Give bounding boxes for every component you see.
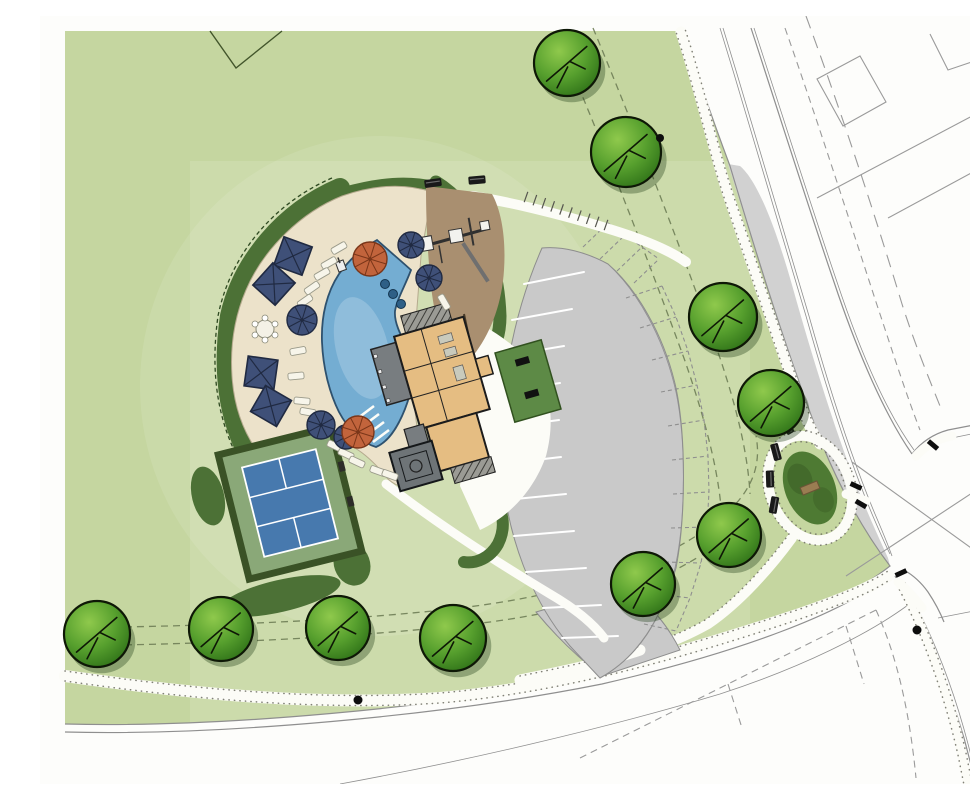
site-plan-canvas (40, 16, 970, 784)
site-plan-svg (40, 16, 970, 784)
